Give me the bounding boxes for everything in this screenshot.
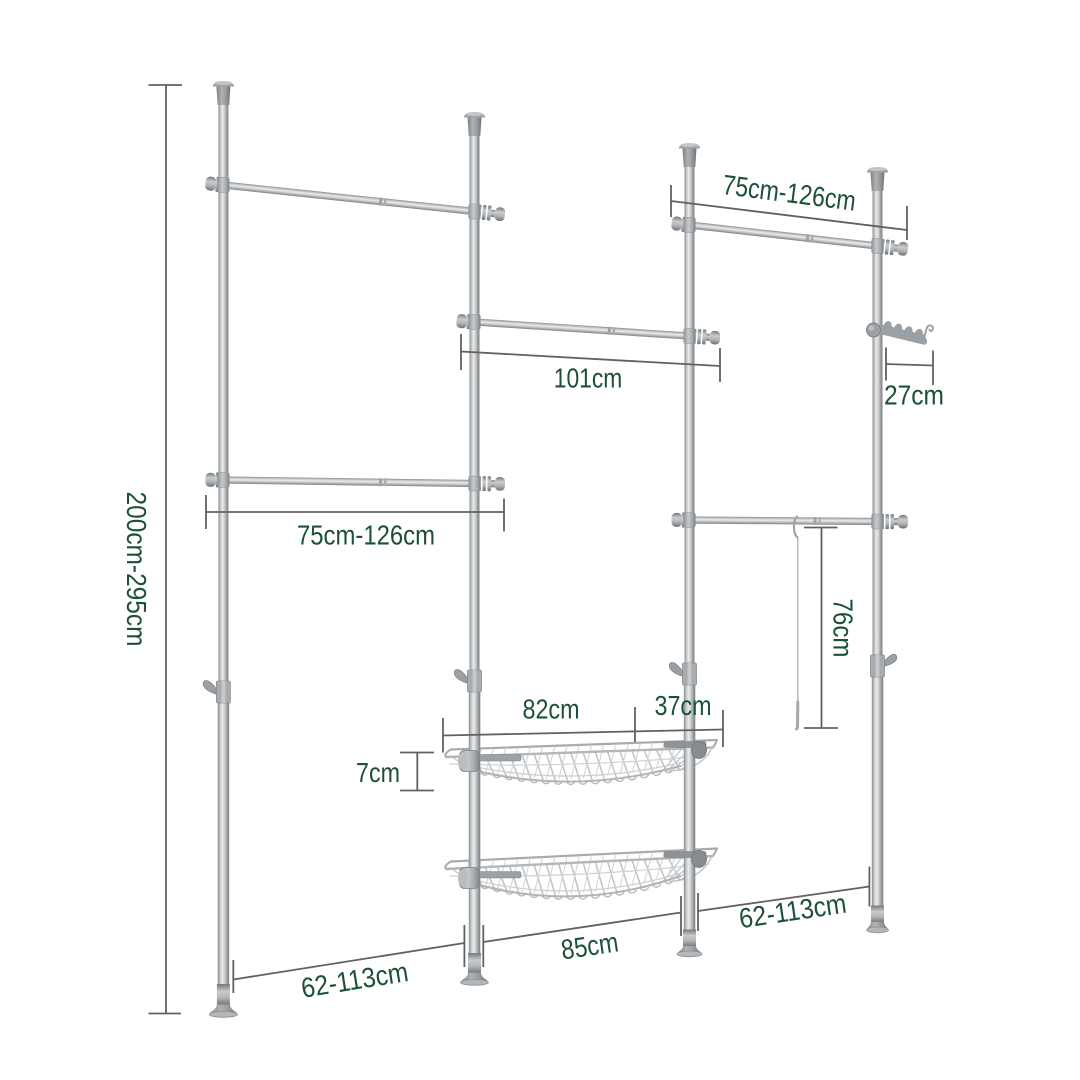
svg-text:76cm: 76cm	[828, 599, 859, 658]
svg-text:200cm-295cm: 200cm-295cm	[121, 492, 152, 647]
svg-text:101cm: 101cm	[554, 362, 623, 393]
svg-text:75cm-126cm: 75cm-126cm	[297, 519, 435, 550]
svg-text:7cm: 7cm	[356, 757, 400, 788]
svg-text:82cm: 82cm	[523, 693, 580, 724]
svg-text:62-113cm: 62-113cm	[299, 956, 411, 1004]
svg-text:37cm: 37cm	[655, 690, 712, 721]
svg-text:85cm: 85cm	[559, 926, 620, 965]
svg-text:62-113cm: 62-113cm	[737, 888, 848, 934]
svg-text:27cm: 27cm	[884, 379, 944, 410]
